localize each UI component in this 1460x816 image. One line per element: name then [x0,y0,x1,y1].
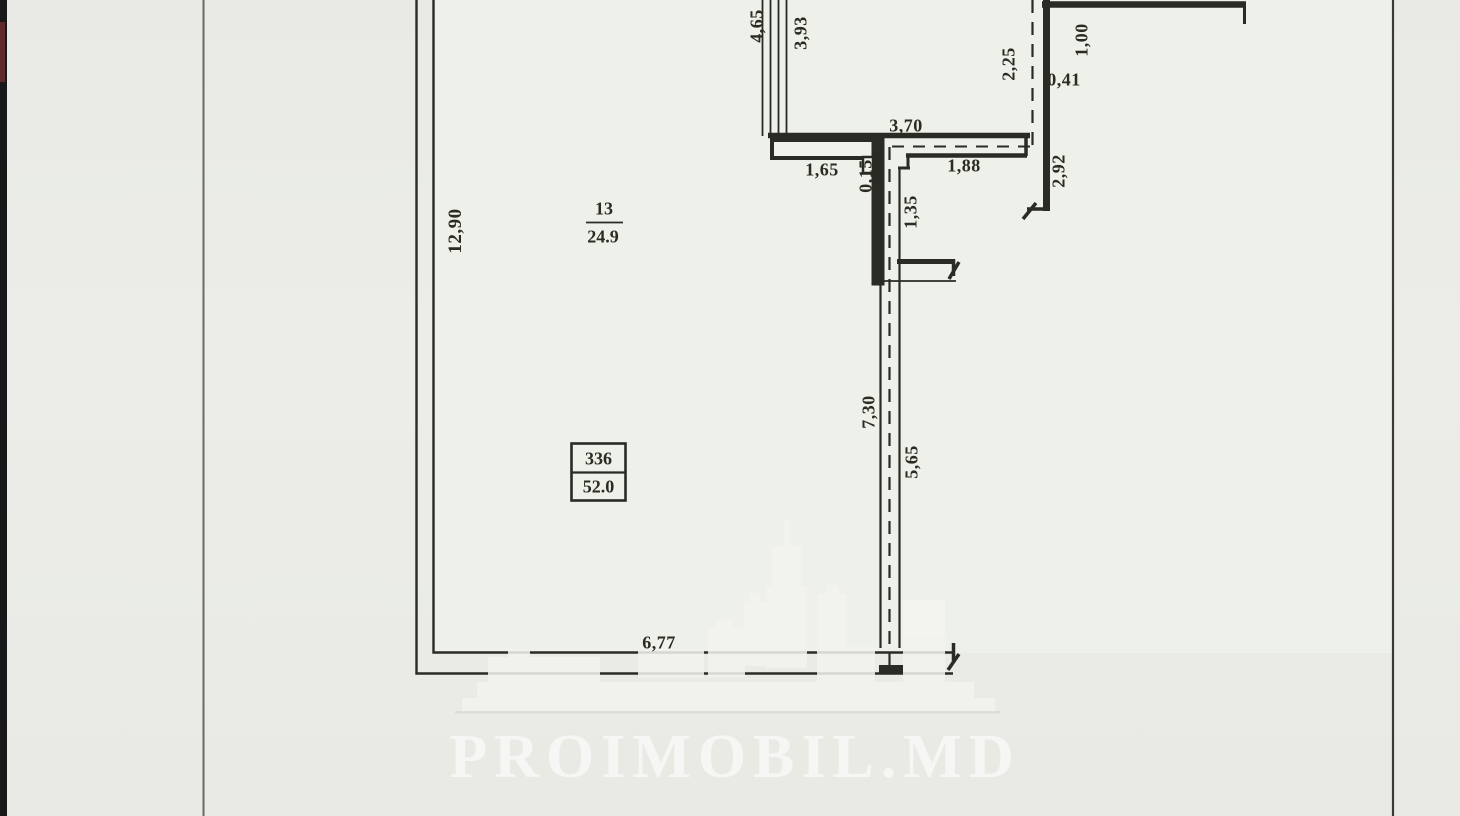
room-area: 24.9 [587,227,619,248]
room-interior [434,0,1392,653]
dim-entry-right: 1,88 [947,156,981,177]
dim-partition-lower: 5,65 [902,445,923,479]
dim-stub-height: 1,35 [901,195,922,229]
dim-dashed-top: 2,25 [999,47,1020,81]
page-edge-red-smudge [0,22,5,82]
floor-plan-scan: 4,65 3,93 3,70 1,65 0,15 1,88 1,35 2,25 … [0,0,1460,816]
dim-right-wall-height: 2,92 [1049,154,1070,188]
dim-balcony-outer: 4,65 [747,9,768,43]
dim-balcony-inner: 3,93 [791,16,812,50]
watermark-brand: PROIMOBIL.MD [378,722,1092,793]
dim-top-right-offset: 0,41 [1047,70,1081,91]
unit-id: 336 [585,449,612,470]
entry-wall-block [772,140,875,158]
dim-top-wall: 3,70 [889,116,923,137]
watermark-base-edge [455,711,1000,714]
partition-foot [879,665,903,673]
floor-plan-drawing [0,0,1460,816]
dim-partition-upper: 7,30 [859,395,880,429]
dim-left-wall-height: 12,90 [445,208,467,253]
dim-top-right-width: 1,00 [1072,23,1093,57]
dim-entry-left: 1,65 [805,160,839,181]
dim-wall-step: 0,15 [856,159,877,193]
page-edge-left [0,0,7,816]
unit-box-area: 52.0 [583,477,615,498]
room-number: 13 [595,199,613,220]
dim-bottom-width: 6,77 [642,633,676,654]
